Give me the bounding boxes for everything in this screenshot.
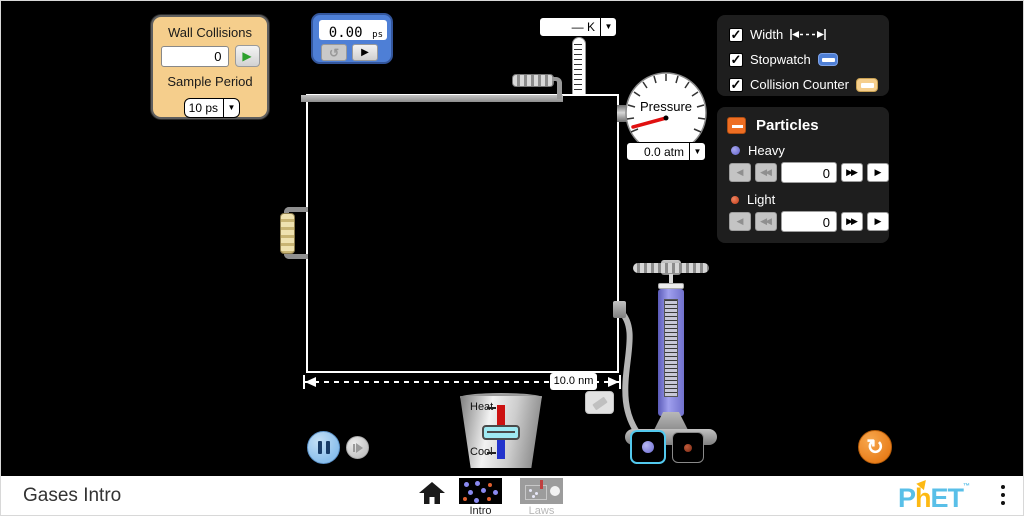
lid-handle[interactable] (512, 74, 554, 87)
stopwatch-display: 0.00 ps (319, 20, 387, 40)
laws-tab-thumbnail (520, 478, 563, 504)
cool-lead-line (487, 452, 496, 454)
chevron-down-icon: ▼ (601, 23, 616, 31)
collision-counter-checkbox-row: ✓ Collision Counter (729, 72, 889, 97)
heat-lead-line (487, 407, 496, 409)
width-checkbox[interactable]: ✓ (729, 28, 743, 42)
sample-period-label: Sample Period (153, 74, 267, 89)
container-lid[interactable] (301, 95, 563, 102)
heavy-particle-row: Heavy (731, 143, 889, 158)
sample-period-dropdown[interactable]: 10 ps ▼ (184, 98, 240, 118)
pressure-value: 0.0 atm (627, 145, 689, 159)
sim-title: Gases Intro (23, 485, 121, 507)
stopwatch-checkbox-row: ✓ Stopwatch (729, 47, 889, 72)
collision-counter-panel[interactable]: Wall Collisions 0 ▶ Sample Period 10 ps … (151, 15, 269, 119)
sim-play-area: Wall Collisions 0 ▶ Sample Period 10 ps … (1, 1, 1024, 476)
sample-period-value: 10 ps (185, 101, 223, 115)
view-options-panel: ✓ Width ✓ Stopwatch ✓ Collision Counter (717, 15, 889, 96)
gas-container (306, 94, 619, 373)
phet-logo-et: ET (931, 483, 964, 513)
reset-all-button[interactable]: ↻ (858, 430, 892, 464)
eraser-icon (592, 397, 607, 411)
width-checkbox-row: ✓ Width (729, 22, 889, 47)
phet-logo-p: P (898, 483, 915, 513)
lid-hook (552, 77, 562, 99)
stopwatch-reset-button[interactable]: ↺ (321, 44, 347, 61)
heavy-spinner: ◀ ◀◀ 0 ▶▶ ▶ (729, 162, 889, 183)
pressure-unit-dropdown[interactable]: 0.0 atm ▼ (626, 142, 706, 161)
light-count-field[interactable]: 0 (781, 211, 837, 232)
light-type-toggle-button[interactable] (672, 432, 704, 463)
width-arrows-icon (790, 29, 826, 40)
heavy-label: Heavy (748, 143, 785, 158)
collision-counter-title: Wall Collisions (153, 25, 267, 40)
light-spinner: ◀ ◀◀ 0 ▶▶ ▶ (729, 211, 889, 232)
tab-intro[interactable]: Intro (459, 478, 502, 516)
resize-handle[interactable] (280, 213, 295, 254)
light-fast-down-button[interactable]: ◀◀ (755, 212, 777, 231)
collapse-minus-button[interactable] (727, 117, 746, 134)
collision-counter-label: Collision Counter (750, 77, 849, 92)
heavy-step-down-button[interactable]: ◀ (729, 163, 751, 182)
tab-laws[interactable]: Laws (520, 478, 563, 516)
intro-tab-thumbnail (459, 478, 502, 504)
eraser-button[interactable] (585, 391, 614, 414)
phet-trademark: ™ (963, 483, 969, 490)
laws-tab-label: Laws (520, 505, 563, 516)
particles-panel: Particles Heavy ◀ ◀◀ 0 ▶▶ ▶ Light ◀ ◀◀ 0 (717, 107, 889, 243)
width-readout: 10.0 nm (550, 373, 597, 390)
heavy-fast-up-button[interactable]: ▶▶ (841, 163, 863, 182)
heavy-fast-down-button[interactable]: ◀◀ (755, 163, 777, 182)
stopwatch-checkbox[interactable]: ✓ (729, 53, 743, 67)
stopwatch-label: Stopwatch (750, 52, 811, 67)
collision-counter-play-button[interactable]: ▶ (235, 45, 260, 67)
home-button[interactable] (419, 482, 445, 504)
pause-button[interactable] (307, 431, 340, 464)
stopwatch-unit: ps (372, 30, 383, 40)
navigation-bar: Gases Intro (1, 476, 1024, 516)
stopwatch-play-button[interactable]: ▶ (352, 44, 378, 61)
pump-handle[interactable] (633, 263, 709, 273)
pump-gauge (664, 299, 678, 397)
heater-slider-thumb[interactable] (482, 425, 520, 440)
collision-counter-checkbox[interactable]: ✓ (729, 78, 743, 92)
gases-intro-simulation: Wall Collisions 0 ▶ Sample Period 10 ps … (0, 0, 1024, 516)
light-step-up-button[interactable]: ▶ (867, 212, 889, 231)
collision-count-display: 0 (161, 46, 229, 67)
particles-title: Particles (756, 117, 819, 134)
light-particle-icon (684, 444, 692, 452)
phet-logo[interactable]: PhET™ (898, 483, 969, 514)
light-particle-icon (731, 196, 739, 204)
chevron-down-icon: ▼ (690, 148, 705, 156)
collision-counter-icon (856, 78, 878, 92)
pressure-gauge-label: Pressure (640, 99, 692, 114)
chevron-down-icon: ▼ (224, 104, 239, 112)
hose-connector (613, 301, 626, 318)
heavy-particle-icon (642, 441, 654, 453)
width-label: Width (750, 27, 783, 42)
stopwatch[interactable]: 0.00 ps ↺ ▶ (311, 13, 393, 64)
step-forward-icon (353, 444, 355, 452)
temperature-value: — K (540, 20, 600, 34)
menu-kebab-button[interactable] (1001, 485, 1005, 505)
light-step-down-button[interactable]: ◀ (729, 212, 751, 231)
heavy-count-field[interactable]: 0 (781, 162, 837, 183)
temperature-unit-dropdown[interactable]: — K ▼ (539, 17, 617, 37)
stopwatch-time: 0.00 (329, 25, 363, 41)
light-fast-up-button[interactable]: ▶▶ (841, 212, 863, 231)
intro-tab-label: Intro (459, 505, 502, 516)
phet-logo-h: h (915, 483, 931, 513)
heavy-particle-icon (731, 146, 740, 155)
heavy-type-toggle-button[interactable] (630, 430, 666, 464)
stopwatch-icon (818, 53, 838, 66)
light-label: Light (747, 192, 775, 207)
light-particle-row: Light (731, 192, 889, 207)
heavy-step-up-button[interactable]: ▶ (867, 163, 889, 182)
pause-icon (318, 441, 322, 454)
step-forward-button[interactable] (346, 436, 369, 459)
